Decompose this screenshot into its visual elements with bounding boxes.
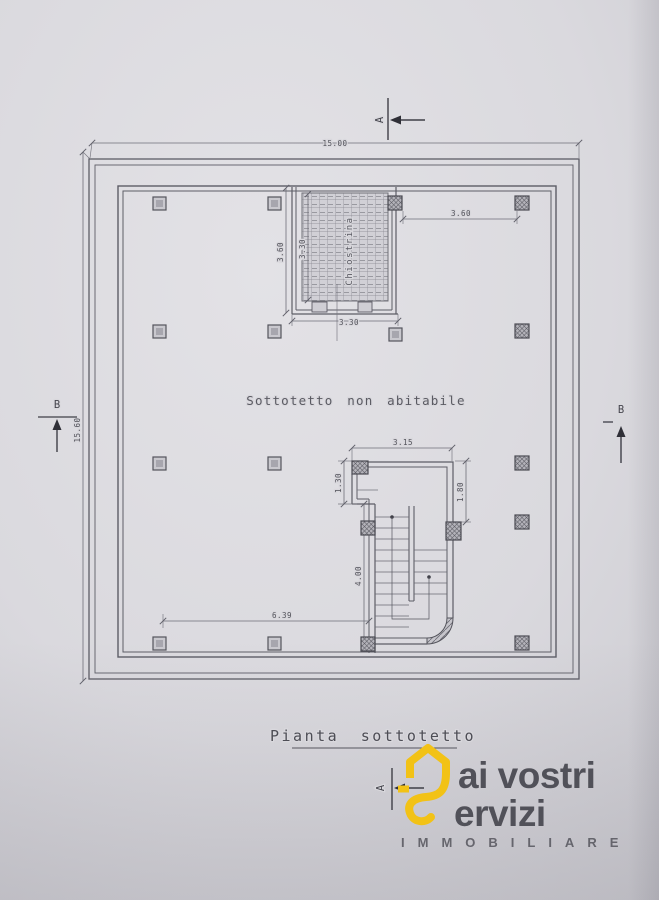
pillar-hatched [388,196,402,210]
scanned-floor-plan-page: 15.00 15.60 Chiostrina 3.60 3 [0,0,659,900]
pillar [268,325,281,338]
pillar [153,325,166,338]
logo-line2: ervizi [454,793,546,834]
chiostrina-label: Chiostrina [345,216,355,285]
pillar-hatched [515,196,529,210]
logo-tagline: IMMOBILIARE [401,835,631,850]
pillar [153,197,166,210]
section-letter-a: A [375,784,387,791]
dim-label-stair-width: 3.15 [393,438,413,447]
pillar-hatched [515,515,529,529]
pillar [268,197,281,210]
chiostrina-tab [312,302,327,312]
section-letter-b: B [54,399,60,411]
section-letter-b: B [618,404,624,416]
logo-line1: ai vostri [458,755,595,796]
pillar [389,328,402,341]
dim-label-bottom-span: 6.39 [272,611,292,620]
dim-label-courtyard-ext: 3.60 [276,242,285,262]
pillar-hatched [515,324,529,338]
pillar-hatched [515,636,529,650]
pillar [268,637,281,650]
photo-right-shadow [628,0,659,900]
attic-floor-plan-drawing: 15.00 15.60 Chiostrina 3.60 3 [0,0,659,900]
section-letter-a: A [374,116,386,123]
pillar [153,637,166,650]
plan-caption: Pianta sottotetto [270,727,476,748]
dim-label-stair-right: 1.80 [456,482,465,502]
pillar-hatched [515,456,529,470]
dim-label-courtyard-int: 3.30 [298,239,307,259]
chiostrina-tab [358,302,372,312]
pillar-hatched [361,521,375,535]
pillar-hatched [446,522,461,540]
dim-label-overall-width: 15.00 [322,139,347,148]
dim-label-stair-length: 4.00 [354,566,363,586]
plan-caption-text: Pianta sottotetto [270,727,476,745]
dim-label-courtyard-width: 3.30 [339,318,359,327]
dim-label-right-span: 3.60 [451,209,471,218]
pillar-hatched [352,461,368,474]
pillar [153,457,166,470]
dim-label-stair-notch: 1.30 [334,473,343,493]
pillar [268,457,281,470]
room-label: Sottotetto non abitabile [246,393,465,408]
pillar-hatched [361,637,375,651]
dim-label-overall-height: 15.60 [73,417,82,442]
